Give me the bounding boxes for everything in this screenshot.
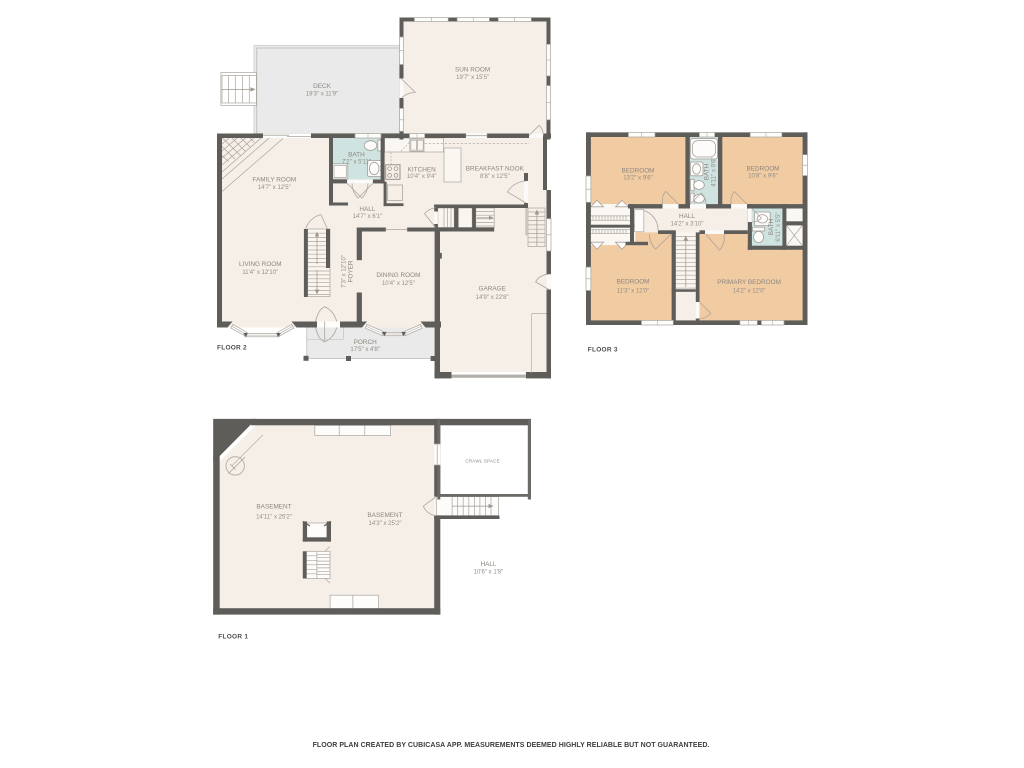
svg-text:BEDROOM: BEDROOM <box>746 165 779 172</box>
svg-text:17'5" x 4'8": 17'5" x 4'8" <box>350 347 380 353</box>
svg-text:7'2" x 5'11": 7'2" x 5'11" <box>342 159 371 165</box>
svg-text:6'11" x 5'5": 6'11" x 5'5" <box>776 212 782 241</box>
svg-text:SUN ROOM: SUN ROOM <box>455 67 490 74</box>
svg-text:11'3" x 12'0": 11'3" x 12'0" <box>617 288 649 294</box>
svg-text:19'3" x 11'9": 19'3" x 11'9" <box>306 91 338 97</box>
svg-text:BEDROOM: BEDROOM <box>616 278 649 285</box>
svg-text:4'11" x 9'6": 4'11" x 9'6" <box>712 157 718 186</box>
svg-text:FAMILY ROOM: FAMILY ROOM <box>252 177 296 184</box>
svg-text:BATH: BATH <box>704 163 711 180</box>
svg-text:10'8" x 9'6": 10'8" x 9'6" <box>748 174 778 180</box>
svg-text:BASEMENT: BASEMENT <box>256 504 291 511</box>
svg-text:10'4" x 12'5": 10'4" x 12'5" <box>382 281 415 287</box>
svg-text:BEDROOM: BEDROOM <box>621 168 654 175</box>
svg-text:LIVING ROOM: LIVING ROOM <box>239 261 282 268</box>
svg-text:FOYER: FOYER <box>348 260 355 282</box>
svg-text:11'4" x 12'10": 11'4" x 12'10" <box>242 270 278 276</box>
svg-text:14'2" x 3'10": 14'2" x 3'10" <box>671 222 704 228</box>
svg-text:14'3" x 25'2": 14'3" x 25'2" <box>369 521 402 527</box>
svg-text:PORCH: PORCH <box>354 339 377 346</box>
svg-text:CRAWL SPACE: CRAWL SPACE <box>465 459 499 464</box>
svg-text:8'8" x 12'5": 8'8" x 12'5" <box>480 174 510 180</box>
svg-text:BREAKFAST NOOK: BREAKFAST NOOK <box>466 165 525 172</box>
svg-text:13'2" x 9'6": 13'2" x 9'6" <box>623 176 653 182</box>
svg-text:FLOOR 1: FLOOR 1 <box>218 633 248 640</box>
svg-text:19'7" x 15'5": 19'7" x 15'5" <box>456 75 489 81</box>
svg-text:PRIMARY BEDROOM: PRIMARY BEDROOM <box>717 279 781 286</box>
svg-text:FLOOR PLAN CREATED BY CUBICASA: FLOOR PLAN CREATED BY CUBICASA APP. MEAS… <box>313 742 710 749</box>
svg-text:DECK: DECK <box>313 83 331 90</box>
svg-text:FLOOR 2: FLOOR 2 <box>217 345 247 352</box>
svg-text:DINING ROOM: DINING ROOM <box>376 272 420 279</box>
svg-text:FLOOR 3: FLOOR 3 <box>588 347 618 354</box>
svg-text:14'7" x 6'1": 14'7" x 6'1" <box>353 214 383 220</box>
svg-text:7'3" x 12'10": 7'3" x 12'10" <box>342 255 348 288</box>
svg-text:HALL: HALL <box>359 206 375 213</box>
svg-text:BASEMENT: BASEMENT <box>367 512 402 519</box>
svg-text:GARAGE: GARAGE <box>479 285 506 292</box>
svg-text:14'9" x 22'8": 14'9" x 22'8" <box>476 295 509 301</box>
svg-text:BATH: BATH <box>348 152 365 159</box>
svg-text:10'6" x 1'8": 10'6" x 1'8" <box>474 569 504 575</box>
svg-text:14'2" x 12'0": 14'2" x 12'0" <box>733 288 766 294</box>
svg-text:BATH: BATH <box>768 218 775 235</box>
svg-text:HALL: HALL <box>481 561 497 568</box>
svg-text:10'4" x 9'4": 10'4" x 9'4" <box>407 174 437 180</box>
svg-text:14'11" x 25'2": 14'11" x 25'2" <box>256 515 292 521</box>
svg-text:HALL: HALL <box>679 213 695 220</box>
svg-text:KITCHEN: KITCHEN <box>408 167 436 174</box>
svg-text:14'7" x 12'5": 14'7" x 12'5" <box>258 185 291 191</box>
